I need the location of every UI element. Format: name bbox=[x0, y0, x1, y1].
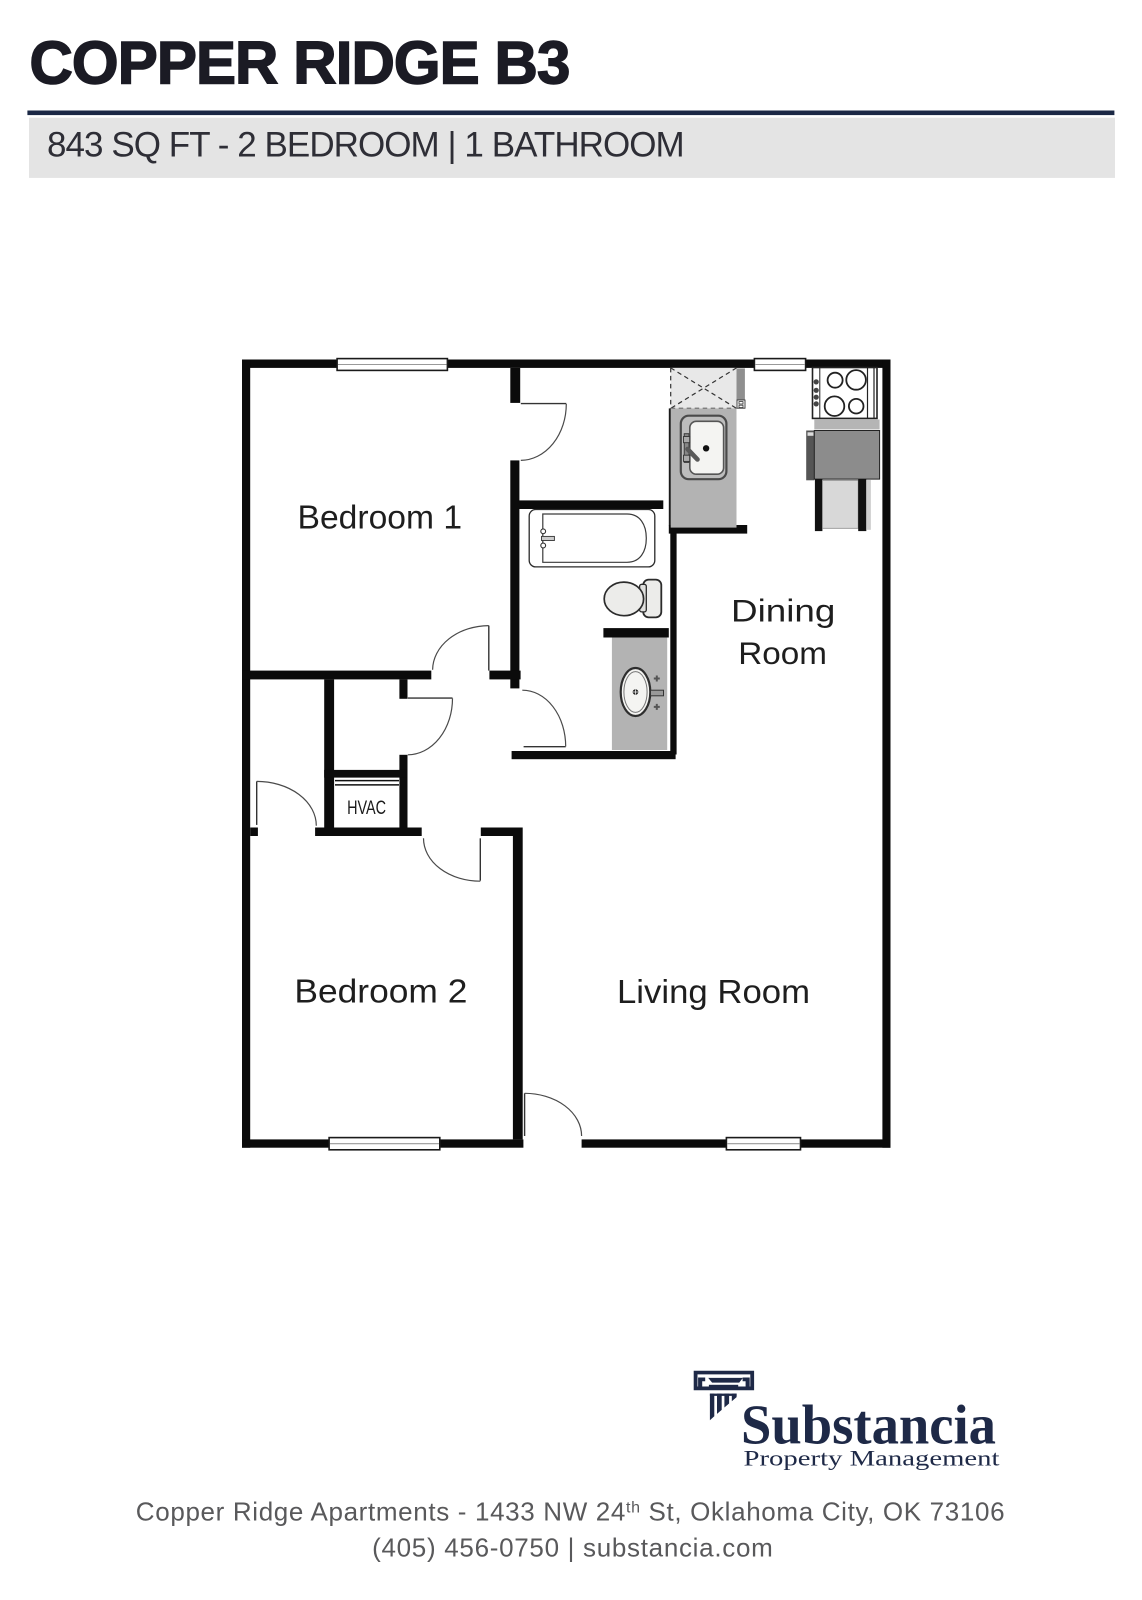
svg-text:843 SQ FT - 2 BEDROOM | 1 BATH: 843 SQ FT - 2 BEDROOM | 1 BATHROOM bbox=[47, 126, 684, 165]
svg-text:Room: Room bbox=[738, 635, 827, 671]
svg-text:HVAC: HVAC bbox=[347, 797, 386, 819]
svg-text:Bedroom 2: Bedroom 2 bbox=[294, 972, 467, 1009]
svg-text:Dining: Dining bbox=[731, 592, 835, 628]
svg-text:COPPER RIDGE B3: COPPER RIDGE B3 bbox=[30, 29, 570, 96]
svg-text:(405) 456-0750 | substancia.co: (405) 456-0750 | substancia.com bbox=[372, 1533, 773, 1563]
svg-text:Copper Ridge Apartments - 1433: Copper Ridge Apartments - 1433 NW 24th S… bbox=[136, 1496, 1005, 1526]
svg-text:Living Room: Living Room bbox=[617, 973, 810, 1010]
svg-text:Bedroom 1: Bedroom 1 bbox=[298, 499, 463, 536]
svg-text:Property Management: Property Management bbox=[744, 1446, 1000, 1471]
